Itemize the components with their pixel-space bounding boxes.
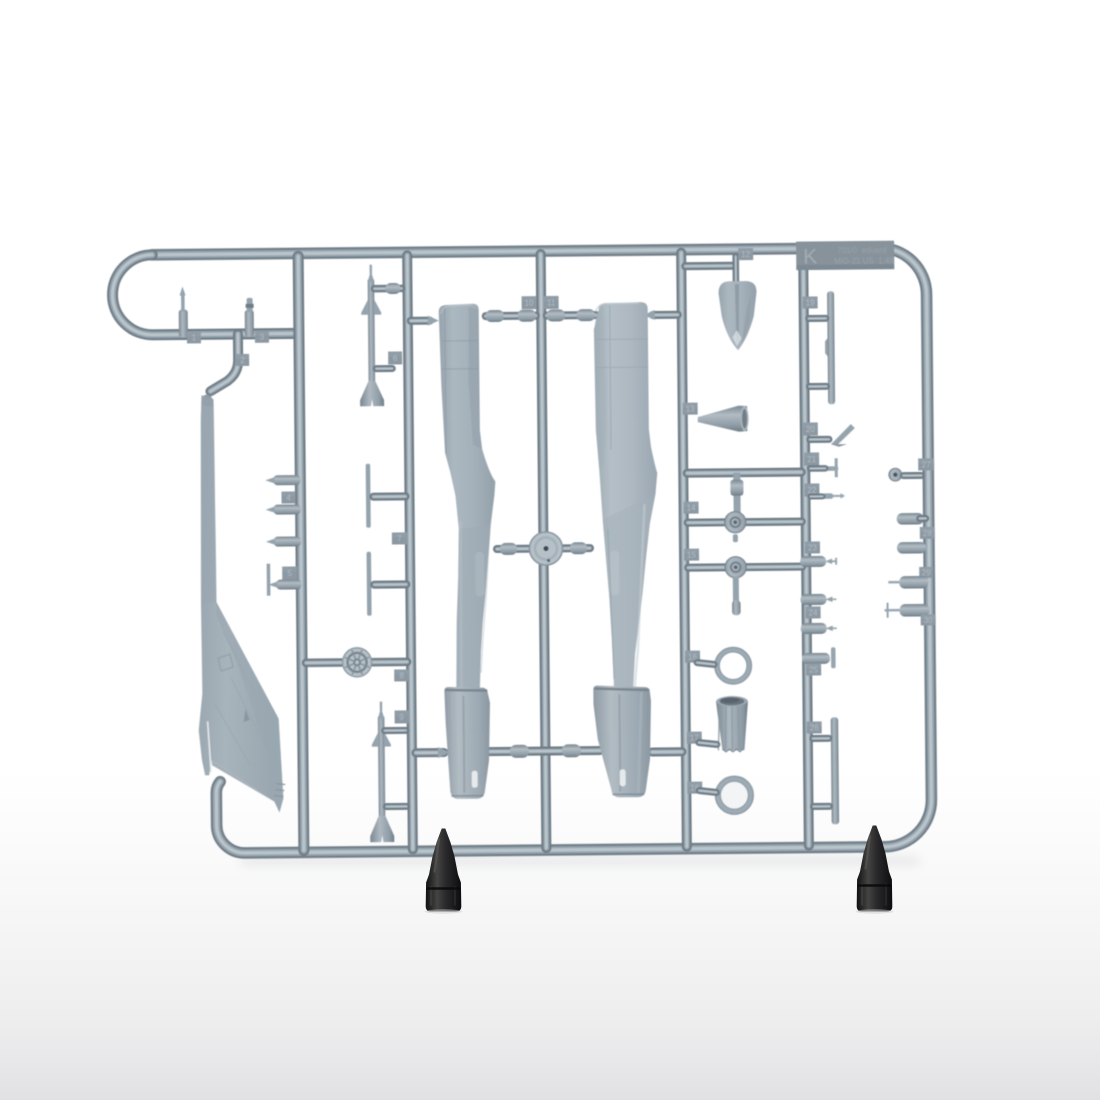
svg-text:24: 24 bbox=[809, 608, 819, 617]
svg-text:28: 28 bbox=[923, 529, 933, 538]
svg-text:6: 6 bbox=[393, 354, 398, 363]
svg-text:K: K bbox=[803, 245, 817, 268]
svg-text:MiG-21 US 1:48: MiG-21 US 1:48 bbox=[834, 256, 894, 266]
svg-text:14: 14 bbox=[687, 503, 697, 512]
svg-text:27: 27 bbox=[922, 460, 932, 469]
svg-text:26: 26 bbox=[810, 723, 820, 732]
svg-text:8: 8 bbox=[399, 671, 404, 680]
svg-text:9: 9 bbox=[399, 713, 404, 722]
svg-text:10: 10 bbox=[525, 299, 535, 308]
svg-text:5: 5 bbox=[287, 569, 292, 578]
svg-text:4: 4 bbox=[286, 493, 291, 502]
svg-text:3: 3 bbox=[260, 333, 265, 342]
svg-text:30: 30 bbox=[924, 616, 934, 625]
svg-text:19: 19 bbox=[806, 298, 816, 307]
svg-text:21: 21 bbox=[807, 455, 817, 464]
svg-text:23: 23 bbox=[808, 543, 818, 552]
svg-text:13: 13 bbox=[686, 404, 696, 413]
svg-text:15: 15 bbox=[687, 550, 697, 559]
svg-text:11: 11 bbox=[547, 298, 556, 307]
svg-text:701/0 eduard: 701/0 eduard bbox=[837, 246, 886, 255]
svg-text:7: 7 bbox=[397, 534, 402, 543]
svg-text:12: 12 bbox=[741, 250, 751, 259]
svg-text:20: 20 bbox=[806, 425, 816, 434]
svg-text:1: 1 bbox=[192, 333, 197, 342]
svg-text:25: 25 bbox=[809, 665, 819, 674]
svg-text:2: 2 bbox=[240, 356, 245, 365]
